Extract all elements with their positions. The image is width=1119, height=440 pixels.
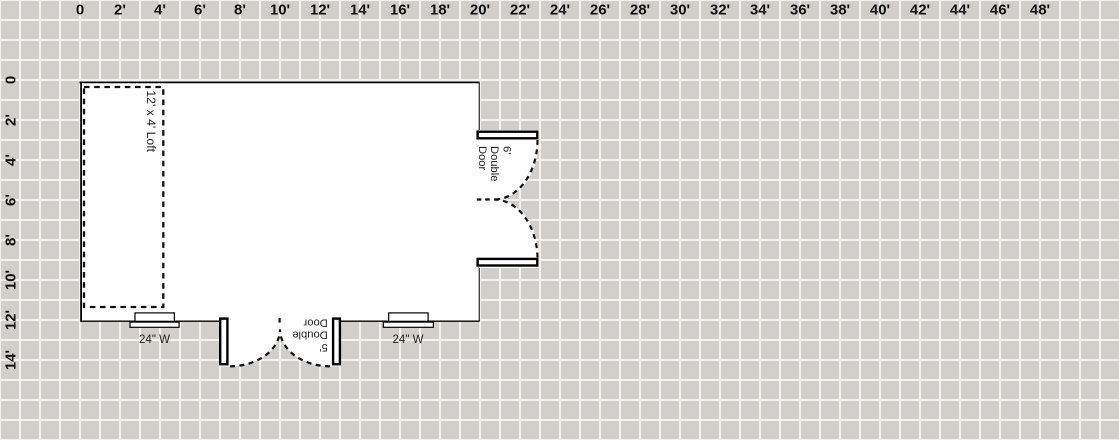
svg-text:24': 24' [550,2,570,19]
svg-text:20': 20' [470,2,490,19]
svg-text:46': 46' [990,2,1010,19]
svg-text:Double: Double [292,329,327,341]
svg-text:38': 38' [830,2,850,19]
svg-text:42': 42' [910,2,930,19]
svg-text:12': 12' [3,310,20,330]
svg-text:0: 0 [76,2,84,19]
svg-text:40': 40' [870,2,890,19]
svg-text:14': 14' [350,2,370,19]
svg-text:6': 6' [194,2,206,19]
svg-text:32': 32' [710,2,730,19]
svg-text:34': 34' [750,2,770,19]
svg-text:5': 5' [319,341,327,353]
svg-text:6': 6' [3,194,20,206]
svg-text:24" W: 24" W [393,334,424,346]
svg-text:Door: Door [303,316,328,328]
svg-text:0: 0 [3,76,20,84]
svg-text:2': 2' [114,2,126,19]
svg-text:14': 14' [3,350,20,370]
svg-text:8': 8' [3,234,20,246]
svg-text:16': 16' [390,2,410,19]
svg-text:36': 36' [790,2,810,19]
svg-text:4': 4' [154,2,166,19]
svg-text:12': 12' [310,2,330,19]
svg-text:10': 10' [3,270,20,290]
svg-text:2': 2' [3,114,20,126]
svg-text:12' x 4' Loft: 12' x 4' Loft [144,90,158,152]
svg-text:22': 22' [510,2,530,19]
svg-text:24" W: 24" W [139,334,170,346]
svg-text:28': 28' [630,2,650,19]
svg-text:18': 18' [430,2,450,19]
svg-text:48': 48' [1030,2,1050,19]
svg-text:6': 6' [501,146,513,154]
svg-text:4': 4' [3,154,20,166]
svg-text:8': 8' [234,2,246,19]
svg-text:44': 44' [950,2,970,19]
svg-text:10': 10' [270,2,290,19]
svg-text:26': 26' [590,2,610,19]
svg-text:30': 30' [670,2,690,19]
svg-text:Door: Door [476,146,488,171]
svg-text:Double: Double [488,146,500,181]
